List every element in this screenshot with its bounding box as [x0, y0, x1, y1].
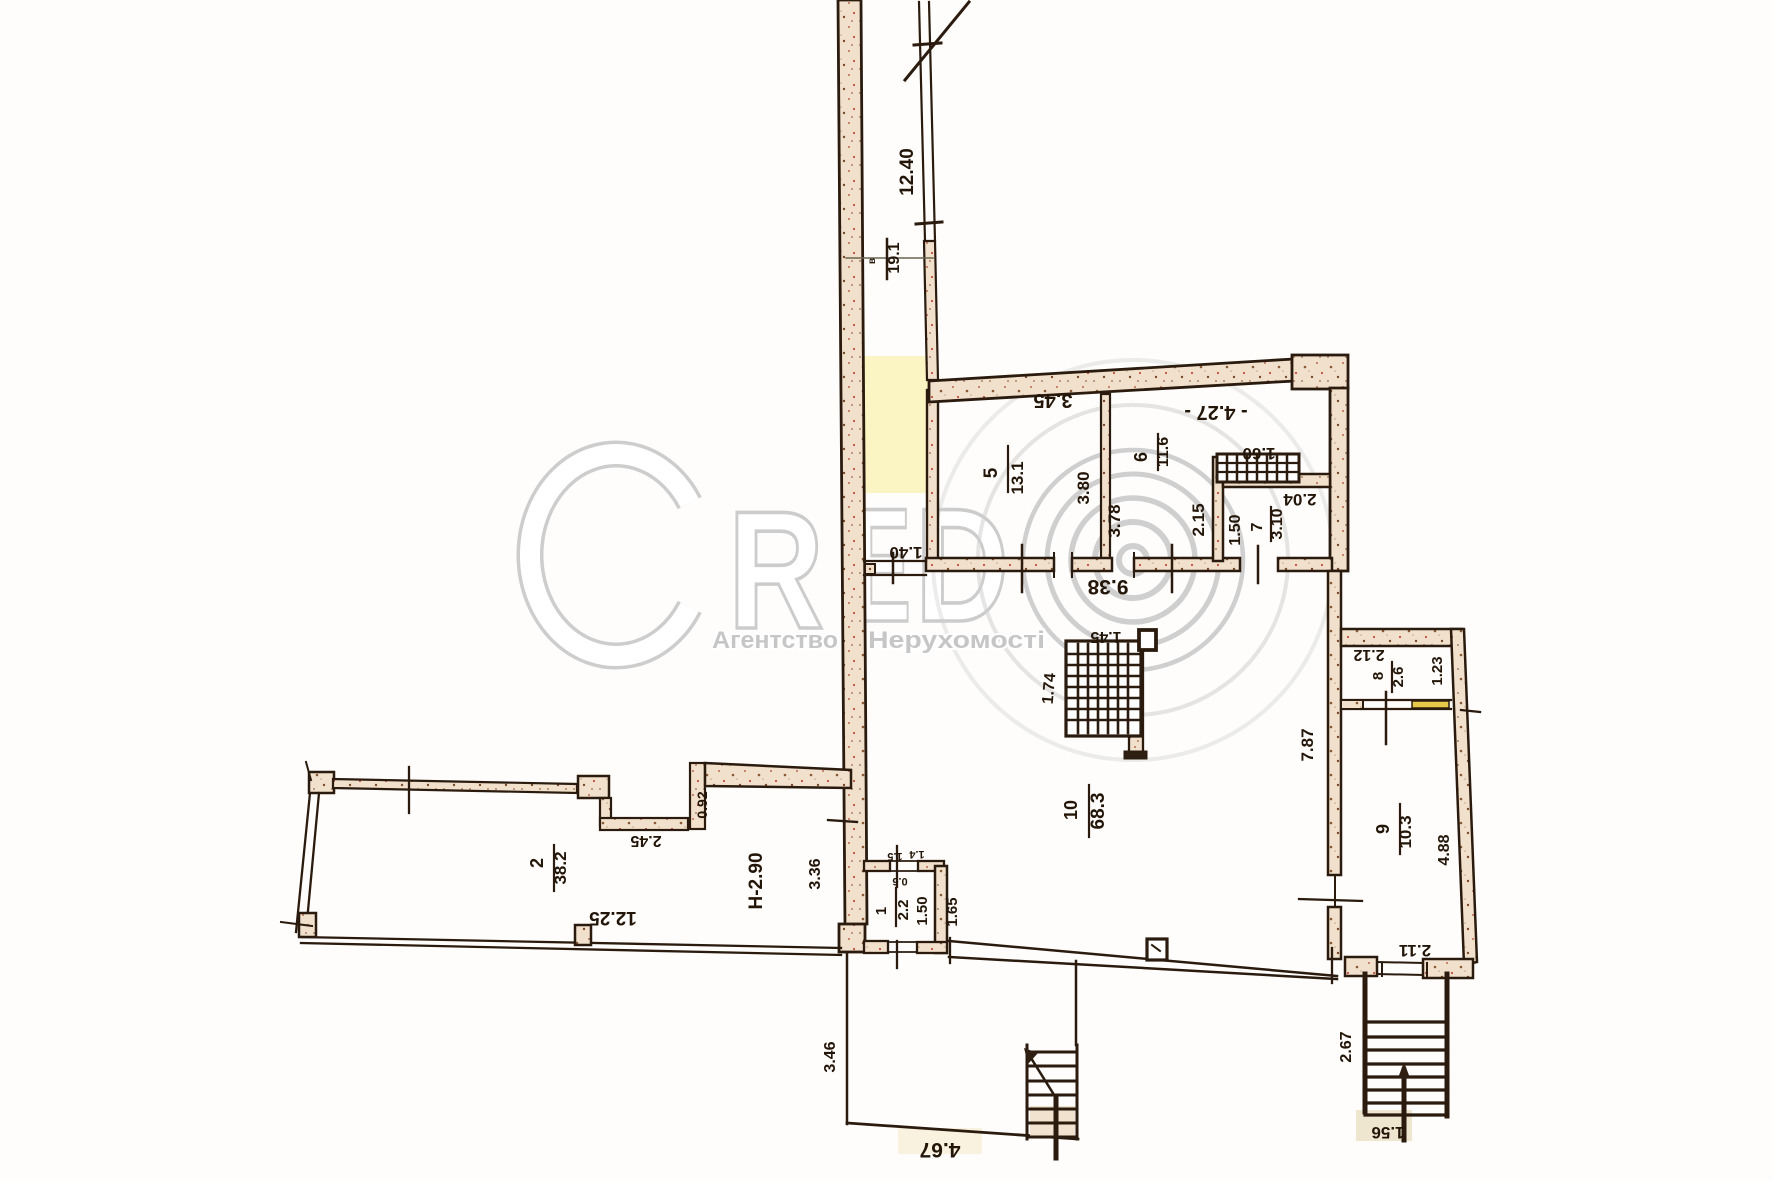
svg-text:2: 2 — [527, 858, 547, 868]
svg-text:13.1: 13.1 — [1008, 461, 1027, 494]
svg-text:1.4: 1.4 — [908, 848, 924, 860]
svg-text:1.50: 1.50 — [1227, 514, 1244, 545]
svg-text:10: 10 — [1061, 800, 1081, 820]
svg-text:3.78: 3.78 — [1105, 504, 1124, 537]
svg-text:2.04: 2.04 — [1283, 490, 1317, 509]
svg-text:3.80: 3.80 — [1074, 471, 1093, 504]
svg-text:3.10: 3.10 — [1269, 508, 1286, 539]
svg-text:1.56: 1.56 — [1371, 1123, 1404, 1142]
svg-text:Нерухомості: Нерухомості — [868, 627, 1045, 654]
svg-text:5: 5 — [981, 467, 1002, 478]
svg-text:- 4.27 -: - 4.27 - — [1184, 401, 1247, 423]
svg-text:3.36: 3.36 — [807, 858, 824, 889]
svg-text:1.60: 1.60 — [1242, 444, 1275, 463]
svg-text:2.45: 2.45 — [630, 832, 661, 849]
svg-text:11.6: 11.6 — [1155, 437, 1172, 467]
svg-text:Агентство: Агентство — [712, 627, 838, 654]
svg-text:1.5: 1.5 — [887, 850, 902, 862]
svg-text:3.46: 3.46 — [822, 1041, 839, 1072]
svg-text:1.23: 1.23 — [1429, 656, 1446, 685]
svg-text:1: 1 — [873, 907, 890, 915]
svg-text:12.25: 12.25 — [589, 907, 637, 928]
svg-text:2.6: 2.6 — [1390, 667, 1407, 688]
svg-text:1.45: 1.45 — [1090, 628, 1121, 645]
svg-text:в: в — [867, 258, 878, 264]
svg-text:Н-2.90: Н-2.90 — [746, 852, 767, 909]
svg-text:7: 7 — [1249, 522, 1266, 531]
svg-text:0.6: 0.6 — [892, 875, 907, 887]
svg-text:19.1: 19.1 — [886, 242, 903, 273]
svg-text:0.92: 0.92 — [694, 791, 710, 818]
svg-text:2.15: 2.15 — [1189, 503, 1208, 536]
svg-text:1.40: 1.40 — [889, 543, 922, 562]
svg-text:12.40: 12.40 — [897, 148, 918, 196]
svg-text:9: 9 — [1373, 824, 1393, 834]
svg-text:2.67: 2.67 — [1338, 1031, 1355, 1062]
svg-text:2.2: 2.2 — [895, 900, 912, 921]
svg-text:8: 8 — [1370, 672, 1387, 680]
svg-text:9.38: 9.38 — [1087, 575, 1128, 598]
svg-text:1.65: 1.65 — [944, 897, 961, 926]
svg-text:3.45: 3.45 — [1034, 389, 1073, 411]
svg-text:68.3: 68.3 — [1088, 793, 1109, 830]
svg-text:10.3: 10.3 — [1396, 815, 1415, 848]
svg-text:4.67: 4.67 — [920, 1138, 961, 1161]
svg-text:2.12: 2.12 — [1353, 646, 1384, 663]
svg-text:38.2: 38.2 — [551, 851, 570, 884]
svg-text:7.87: 7.87 — [1298, 728, 1317, 761]
svg-text:1.74: 1.74 — [1040, 672, 1060, 705]
svg-text:2.11: 2.11 — [1399, 941, 1431, 960]
svg-text:1.50: 1.50 — [914, 896, 931, 925]
svg-text:6: 6 — [1131, 452, 1151, 462]
svg-text:4.88: 4.88 — [1436, 834, 1453, 865]
